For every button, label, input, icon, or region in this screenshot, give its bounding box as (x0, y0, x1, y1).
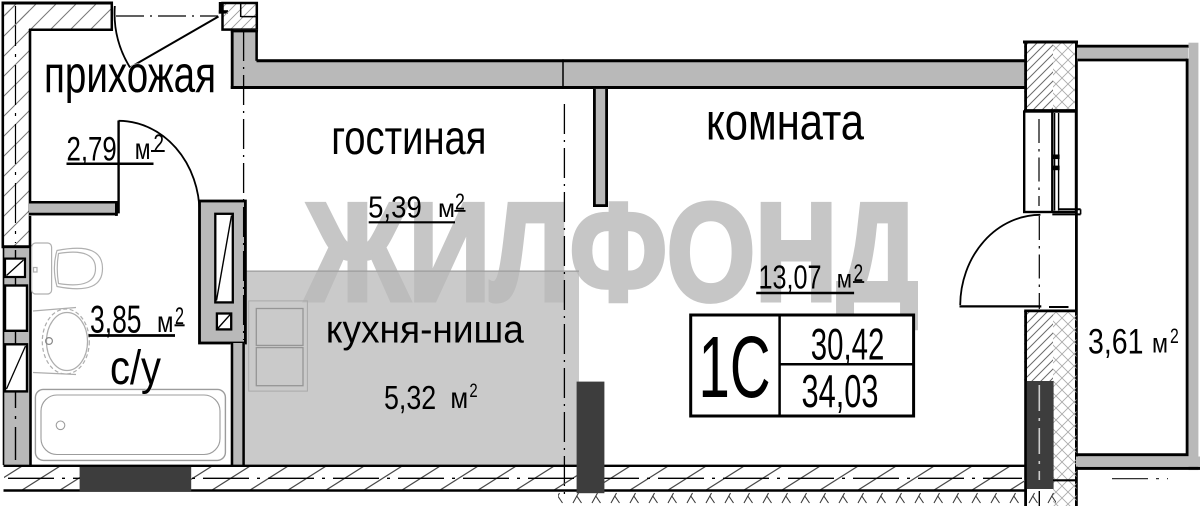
svg-text:1C: 1C (699, 318, 771, 416)
svg-text:2: 2 (469, 380, 477, 402)
svg-text:м: м (135, 133, 151, 166)
svg-text:м: м (157, 306, 174, 339)
svg-text:м: м (837, 264, 852, 294)
svg-text:2: 2 (1170, 325, 1179, 348)
svg-text:5,32: 5,32 (384, 379, 436, 416)
svg-text:3,61: 3,61 (1088, 323, 1144, 362)
svg-text:м: м (450, 382, 468, 415)
svg-text:гостиная: гостиная (331, 112, 486, 165)
svg-text:34,03: 34,03 (802, 365, 879, 417)
svg-text:30,42: 30,42 (811, 321, 885, 370)
svg-text:13,07: 13,07 (759, 260, 822, 297)
svg-text:прихожая: прихожая (44, 45, 216, 103)
svg-text:кухня-ниша: кухня-ниша (326, 309, 524, 352)
svg-text:с/у: с/у (110, 342, 161, 395)
svg-text:комната: комната (706, 94, 864, 152)
svg-text:м: м (1152, 328, 1168, 359)
svg-text:м: м (438, 195, 455, 223)
svg-text:2: 2 (154, 130, 165, 158)
svg-text:5,39: 5,39 (368, 190, 422, 225)
